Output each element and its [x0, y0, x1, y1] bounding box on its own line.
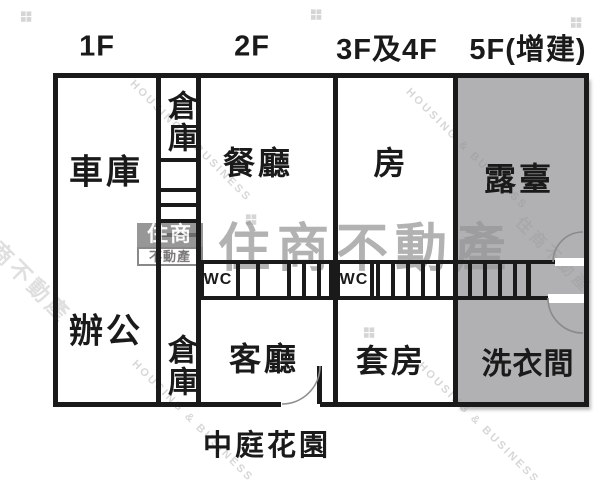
stair-rung	[468, 264, 472, 296]
floor-plan: 住商不動產 HOUSING & BUSINESS HOUSING & BUSIN…	[0, 0, 615, 480]
brand-logo-bottom-text: 不動產	[137, 247, 203, 266]
stair-rung	[287, 264, 291, 296]
brand-logo-top-text: 住商	[137, 223, 203, 247]
stair-rung	[256, 264, 260, 296]
wall-outer-bottom-left	[53, 402, 281, 407]
diagonal-watermark-cjk: 住商不動產	[0, 215, 80, 330]
floor-label-5f: 5F(增建)	[469, 26, 586, 68]
wall-corridor-top	[201, 260, 555, 264]
room-label-garage: 車庫	[69, 145, 143, 194]
door-opening-laundry	[548, 294, 584, 303]
floor-label-3f-4f: 3F及4F	[336, 26, 438, 68]
door-leaf-courtyard	[317, 366, 322, 404]
wall-outer-right	[584, 73, 589, 407]
wall-2f-3f-divider	[333, 78, 338, 402]
brand-logo-stamp: 住商 不動產	[137, 223, 203, 266]
room-label-office: 辦公	[69, 304, 143, 353]
stair-rung	[391, 264, 395, 296]
floor-label-1f: 1F	[79, 31, 115, 64]
room-label-bedroom: 房	[373, 138, 408, 184]
room-label-storage-top: 倉庫	[157, 90, 201, 154]
stair-rung	[376, 264, 380, 296]
stair-rung	[498, 264, 502, 296]
courtyard-garden-label: 中庭花園	[203, 422, 331, 464]
door-opening-terrace	[555, 258, 584, 266]
stair-rung	[406, 264, 410, 296]
wall-outer-left	[53, 73, 58, 407]
stair-rung	[526, 264, 531, 296]
brand-diamond-icon: ❖	[300, 0, 330, 30]
room-label-terrace: 露臺	[484, 154, 554, 200]
room-label-storage-bottom: 倉庫	[157, 334, 201, 398]
room-label-suite: 套房	[356, 336, 426, 382]
stair-rung	[161, 158, 196, 162]
wall-outer-top	[53, 73, 589, 78]
brand-diamond-icon: ❖	[235, 205, 265, 235]
floor-label-2f: 2F	[234, 31, 270, 64]
room-label-wc-left: WC	[204, 271, 233, 289]
wall-outer-bottom-right	[320, 402, 589, 407]
stair-rung	[161, 203, 196, 207]
stair-rung	[513, 264, 517, 296]
stair-rung	[421, 264, 425, 296]
room-label-dining: 餐廳	[223, 138, 293, 184]
wall-corridor-bottom	[201, 296, 548, 300]
stair-rung	[161, 188, 196, 192]
stair-rung	[483, 264, 487, 296]
brand-diamond-icon: ❖	[10, 2, 40, 32]
room-label-living: 客廳	[229, 334, 299, 380]
wall-4f-5f-divider	[453, 78, 458, 402]
room-label-wc-right: WC	[340, 271, 369, 289]
stair-rung	[302, 264, 306, 296]
stair-rung	[436, 264, 440, 296]
room-label-laundry: 洗衣間	[482, 339, 575, 383]
stair-rung	[317, 264, 321, 296]
